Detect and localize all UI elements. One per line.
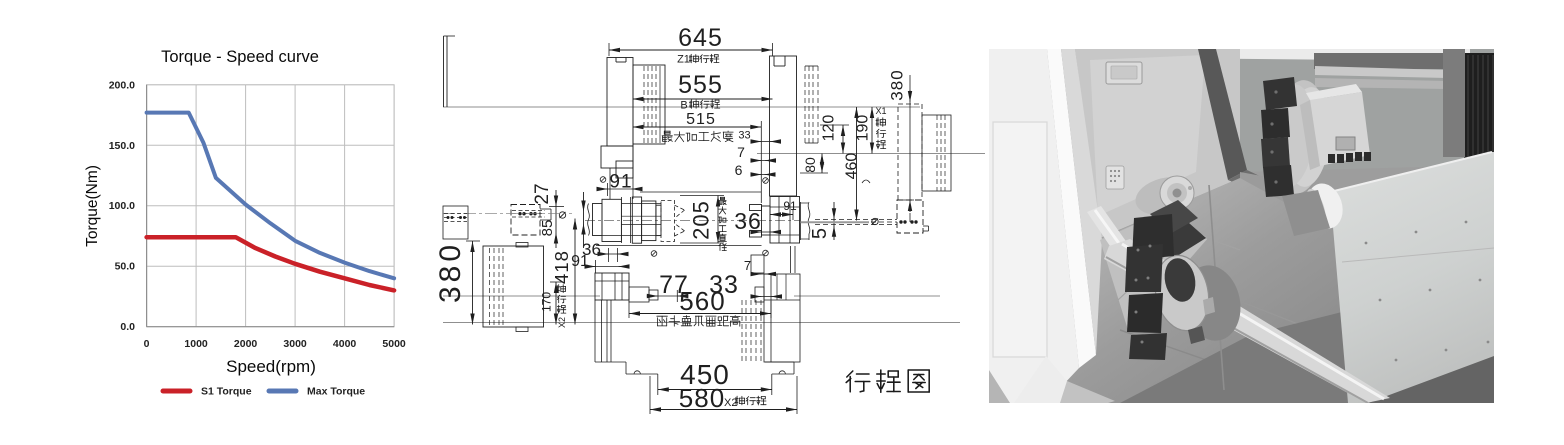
svg-text:B: B <box>680 100 687 112</box>
svg-text:190: 190 <box>855 115 872 142</box>
svg-text:120: 120 <box>821 115 838 142</box>
svg-text:560: 560 <box>679 286 725 316</box>
svg-text:0: 0 <box>144 338 150 350</box>
svg-text:33: 33 <box>738 130 750 142</box>
svg-text:Torque - Speed curve: Torque - Speed curve <box>161 48 319 66</box>
svg-text:X2: X2 <box>557 317 567 328</box>
svg-text:460: 460 <box>844 153 861 180</box>
svg-text:6: 6 <box>735 162 743 178</box>
svg-text:X1: X1 <box>875 106 886 116</box>
svg-text:170: 170 <box>540 292 554 312</box>
svg-text:7: 7 <box>737 144 745 160</box>
svg-text:85: 85 <box>539 220 556 237</box>
svg-text:Max Torque: Max Torque <box>307 386 365 398</box>
svg-text:7: 7 <box>744 258 751 273</box>
svg-text:100.0: 100.0 <box>109 200 135 212</box>
svg-text:S1 Torque: S1 Torque <box>201 386 252 398</box>
svg-text:380: 380 <box>434 241 467 303</box>
svg-text:0.0: 0.0 <box>120 321 135 333</box>
svg-text:5: 5 <box>809 228 831 239</box>
svg-text:Speed(rpm): Speed(rpm) <box>226 357 316 376</box>
svg-text:2000: 2000 <box>234 338 258 350</box>
svg-text:200.0: 200.0 <box>109 79 135 91</box>
svg-text:5000: 5000 <box>382 338 406 350</box>
svg-text:3000: 3000 <box>283 338 307 350</box>
svg-text:418: 418 <box>551 250 572 284</box>
svg-text:80: 80 <box>802 157 818 173</box>
svg-text:580: 580 <box>679 383 725 413</box>
svg-text:380: 380 <box>888 69 907 100</box>
svg-text:4000: 4000 <box>333 338 357 350</box>
svg-text:1000: 1000 <box>184 338 208 350</box>
svg-text:50.0: 50.0 <box>115 261 136 273</box>
svg-text:27: 27 <box>532 183 553 204</box>
svg-text:Torque(Nm): Torque(Nm) <box>84 165 101 247</box>
svg-text:91: 91 <box>783 199 797 213</box>
svg-text:Z1: Z1 <box>677 54 690 66</box>
svg-text:515: 515 <box>686 111 716 128</box>
svg-text:36: 36 <box>734 208 762 234</box>
svg-text:645: 645 <box>678 24 723 52</box>
svg-text:555: 555 <box>678 71 723 99</box>
svg-text:150.0: 150.0 <box>109 140 135 152</box>
svg-text:205: 205 <box>689 200 714 240</box>
